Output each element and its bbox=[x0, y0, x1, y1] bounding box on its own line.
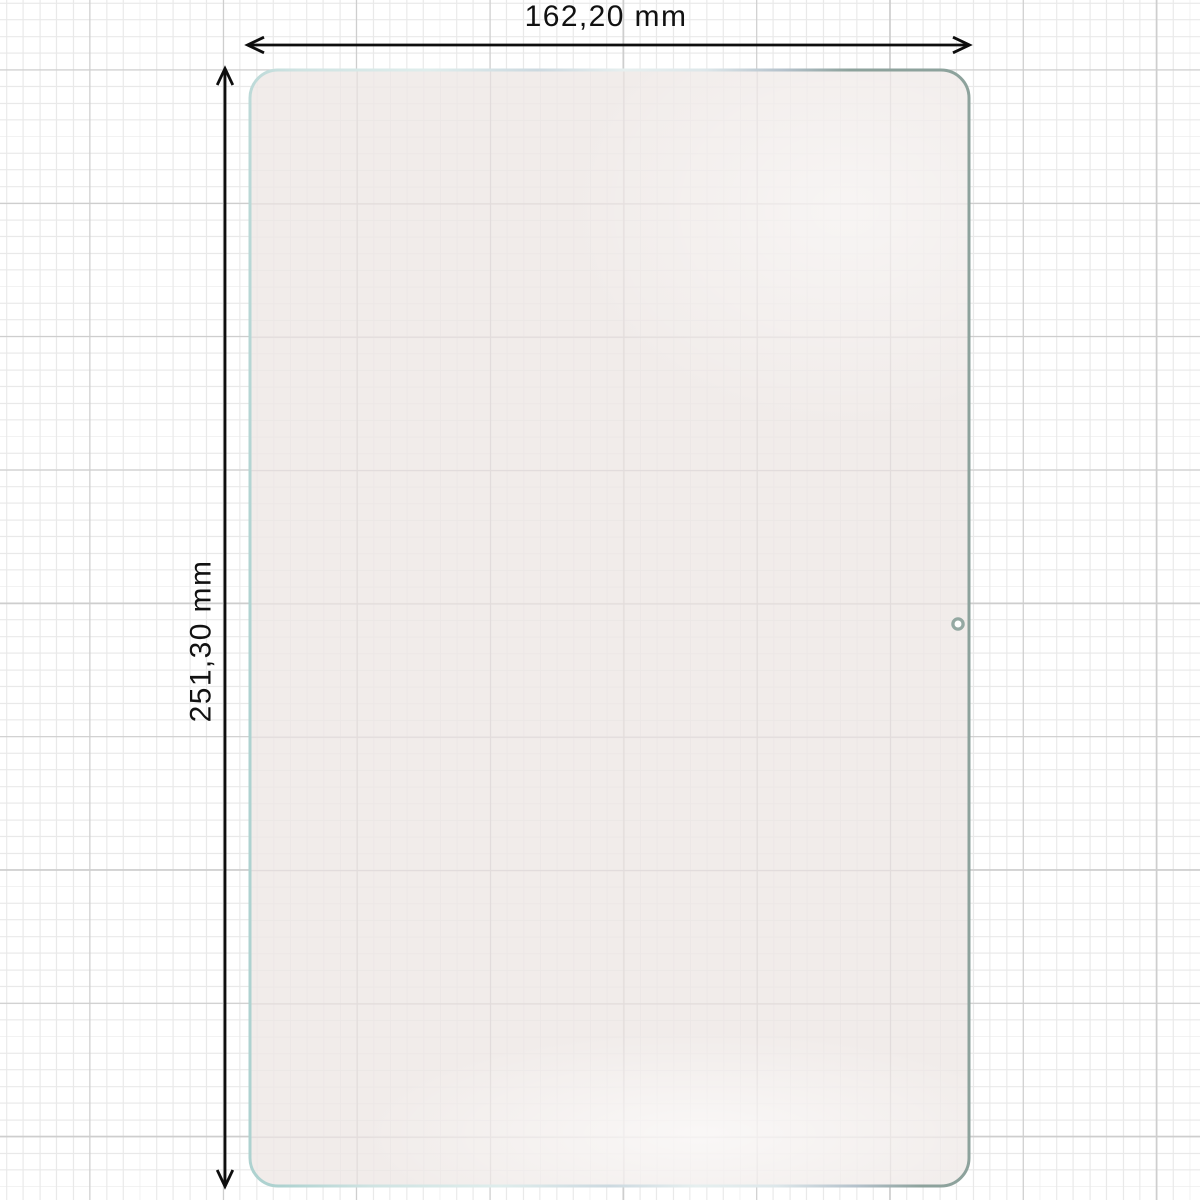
svg-text:251,30 mm: 251,30 mm bbox=[185, 560, 218, 723]
svg-text:162,20 mm: 162,20 mm bbox=[525, 0, 688, 33]
